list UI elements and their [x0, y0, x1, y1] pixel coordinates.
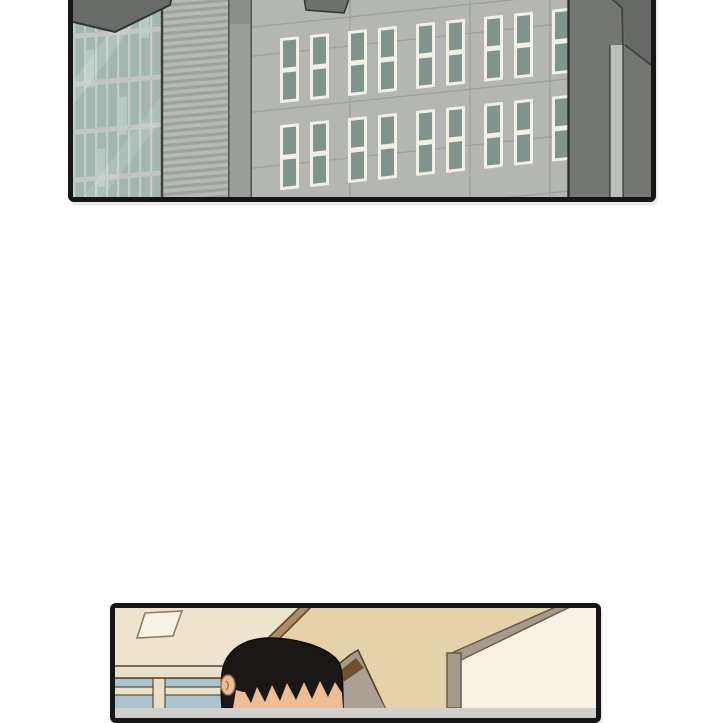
building-pillar	[228, 0, 252, 197]
comic-panel-room	[110, 603, 601, 723]
side-pillar	[610, 45, 623, 197]
comic-panel-city	[68, 0, 656, 202]
window-post	[153, 678, 165, 708]
city-scene	[73, 0, 651, 197]
room-scene	[115, 608, 596, 708]
building-dark-side	[568, 0, 651, 197]
striped-building	[161, 0, 228, 197]
rooftop-overhang	[303, 0, 352, 13]
